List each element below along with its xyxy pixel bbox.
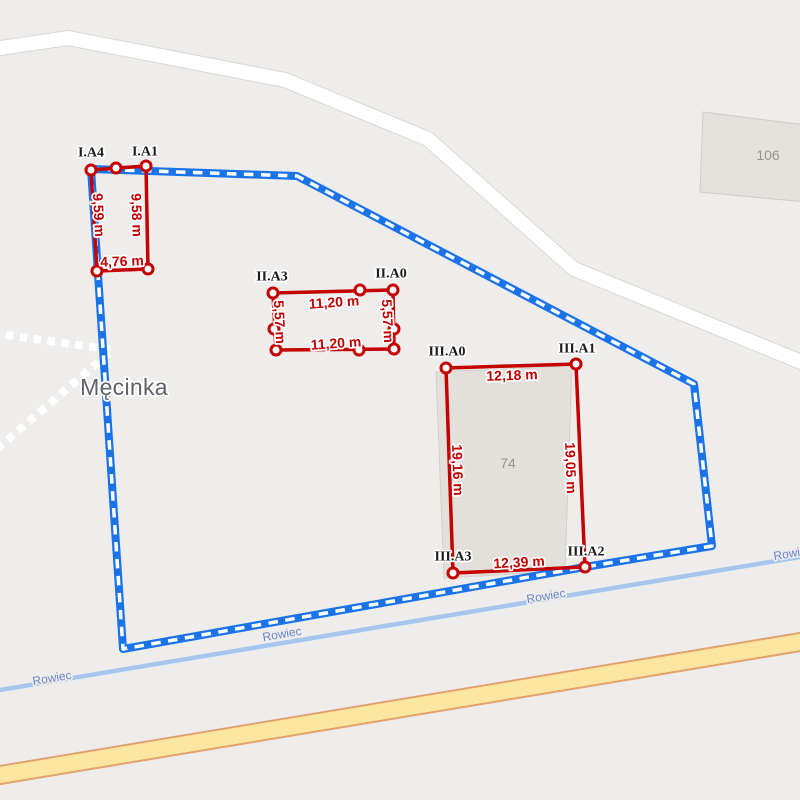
distance-label-III-bottom: 12,39 m [493,553,545,572]
vertex-label-III-A0: III.A0 [429,345,466,360]
vertex-label-III-A1: III.A1 [559,342,596,357]
vertex-label-II-A0: II.A0 [375,267,407,282]
distance-label-II-left: 5,57 m [271,300,289,344]
survey-point-III-A0[interactable] [441,363,451,373]
distance-label-I-bottom: 4,76 m [100,252,144,270]
survey-point-I-mid-top[interactable] [111,163,121,173]
survey-point-III-A2[interactable] [580,562,590,572]
distance-label-III-top: 12,18 m [486,366,538,384]
vertex-label-II-A3: II.A3 [256,270,288,285]
survey-point-III-A3[interactable] [448,568,458,578]
survey-point-II-bottom-left[interactable] [271,345,281,355]
survey-point-II-A0[interactable] [388,285,398,295]
vertex-label-III-A2: III.A2 [568,545,605,560]
survey-point-II-bottom-right[interactable] [389,344,399,354]
vertex-label-I-A1: I.A1 [132,145,158,160]
parcel-106-label: 106 [756,147,780,163]
vertex-label-III-A3: III.A3 [435,550,472,565]
vertex-label-I-A4: I.A4 [78,146,104,161]
distance-label-III-left: 19,16 m [449,444,467,496]
map-svg[interactable]: Rowiec Rowiec Rowiec Rowiec Męcinka 106 … [0,0,800,800]
survey-point-I-A1[interactable] [141,161,151,171]
distance-label-I-right: 9,58 m [128,193,146,237]
survey-point-I-A4[interactable] [86,165,96,175]
place-label-mecinka[interactable]: Męcinka [80,374,168,400]
survey-point-III-A1[interactable] [571,359,581,369]
parcel-74-label: 74 [500,455,516,471]
map-canvas[interactable]: Rowiec Rowiec Rowiec Rowiec Męcinka 106 … [0,0,800,800]
survey-point-I-bottom-right[interactable] [143,264,153,274]
distance-label-I-left: 9,59 m [90,193,108,237]
distance-label-II-right: 5,57 m [379,299,397,343]
parcel-106-shape [700,112,800,202]
survey-point-II-A3[interactable] [268,288,278,298]
distance-label-III-right: 19,05 m [562,442,580,494]
